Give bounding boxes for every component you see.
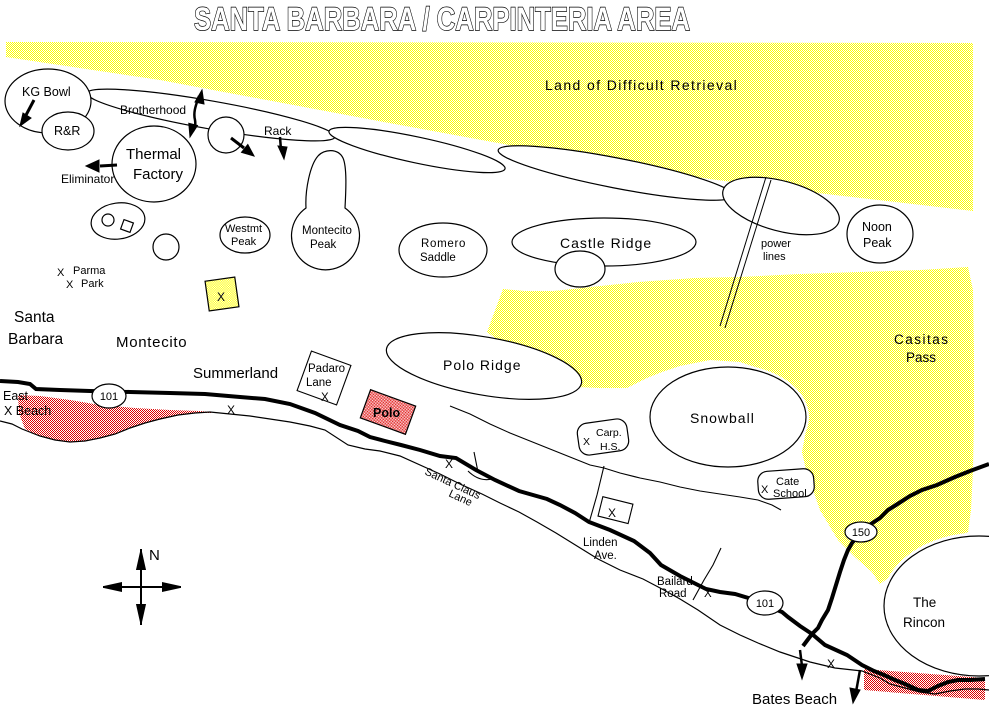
svg-text:R&R: R&R — [54, 124, 80, 138]
svg-text:Montecito: Montecito — [302, 225, 352, 237]
svg-text:Ave.: Ave. — [594, 550, 617, 562]
svg-text:N: N — [149, 547, 160, 564]
svg-text:101: 101 — [100, 391, 118, 403]
svg-text:Peak: Peak — [310, 239, 336, 251]
svg-text:Casitas: Casitas — [894, 332, 950, 347]
svg-text:Santa: Santa — [14, 309, 55, 326]
svg-text:Saddle: Saddle — [420, 252, 456, 264]
svg-text:Cate: Cate — [776, 476, 799, 488]
svg-text:H.S.: H.S. — [600, 441, 620, 453]
svg-text:Parma: Parma — [73, 265, 106, 277]
svg-text:X: X — [217, 290, 225, 304]
svg-text:Snowball: Snowball — [690, 410, 755, 426]
svg-text:Thermal: Thermal — [126, 146, 181, 163]
svg-text:Pass: Pass — [906, 350, 936, 365]
svg-text:X: X — [827, 657, 835, 671]
svg-text:Rack: Rack — [264, 124, 292, 138]
svg-text:X: X — [321, 392, 329, 404]
svg-text:X: X — [583, 436, 590, 448]
svg-text:The: The — [913, 595, 936, 610]
svg-text:Summerland: Summerland — [193, 365, 278, 382]
svg-text:X: X — [66, 279, 74, 291]
svg-text:Carp.: Carp. — [596, 427, 622, 439]
svg-text:Romero: Romero — [421, 238, 466, 250]
svg-text:Park: Park — [81, 278, 104, 290]
svg-text:Peak: Peak — [863, 236, 892, 250]
svg-text:Linden: Linden — [583, 537, 618, 549]
svg-text:Rincon: Rincon — [903, 615, 945, 630]
svg-text:School: School — [773, 488, 807, 500]
svg-text:X Beach: X Beach — [4, 404, 51, 418]
svg-text:Polo Ridge: Polo Ridge — [443, 357, 522, 373]
svg-text:Padaro: Padaro — [308, 363, 345, 375]
svg-text:Castle Ridge: Castle Ridge — [560, 235, 652, 251]
svg-text:Polo: Polo — [373, 406, 400, 420]
svg-text:Westmt: Westmt — [225, 223, 262, 235]
svg-text:X: X — [704, 588, 712, 600]
svg-text:X: X — [608, 506, 616, 520]
svg-text:Eliminator: Eliminator — [61, 172, 114, 186]
svg-text:Montecito: Montecito — [116, 334, 187, 351]
svg-text:Bailard: Bailard — [657, 576, 693, 588]
svg-text:X: X — [761, 484, 769, 496]
svg-text:150: 150 — [852, 527, 870, 539]
svg-text:X: X — [57, 267, 65, 279]
svg-text:Land of Difficult Retrieval: Land of Difficult Retrieval — [545, 77, 738, 93]
svg-text:Peak: Peak — [231, 236, 257, 248]
svg-text:101: 101 — [756, 598, 774, 610]
svg-text:Noon: Noon — [862, 220, 892, 234]
svg-text:KG Bowl: KG Bowl — [22, 85, 71, 99]
svg-text:Road: Road — [659, 588, 687, 600]
svg-text:Barbara: Barbara — [8, 331, 64, 348]
svg-text:X: X — [227, 403, 235, 417]
svg-text:Lane: Lane — [306, 377, 332, 389]
svg-text:Factory: Factory — [133, 166, 184, 183]
svg-text:Brotherhood: Brotherhood — [120, 103, 186, 117]
svg-text:lines: lines — [763, 251, 786, 263]
svg-text:power: power — [761, 238, 791, 250]
svg-text:SANTA BARBARA / CARPINTERIA AR: SANTA BARBARA / CARPINTERIA AREA — [194, 1, 690, 37]
svg-text:Bates Beach: Bates Beach — [752, 691, 837, 708]
svg-text:X: X — [445, 457, 453, 471]
svg-text:East: East — [3, 389, 29, 403]
